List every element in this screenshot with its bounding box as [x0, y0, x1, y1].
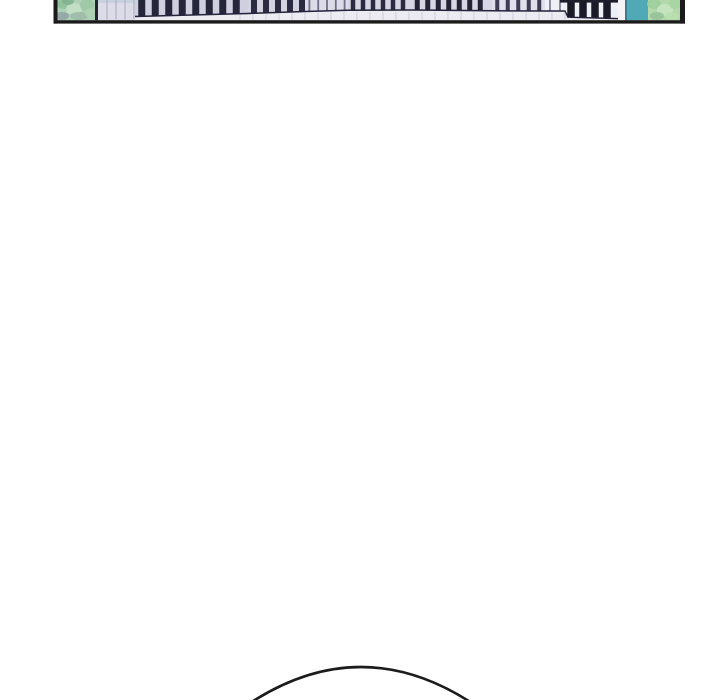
head-outline [0, 0, 720, 700]
head-outline-path [253, 667, 470, 700]
webtoon-page [0, 0, 720, 700]
